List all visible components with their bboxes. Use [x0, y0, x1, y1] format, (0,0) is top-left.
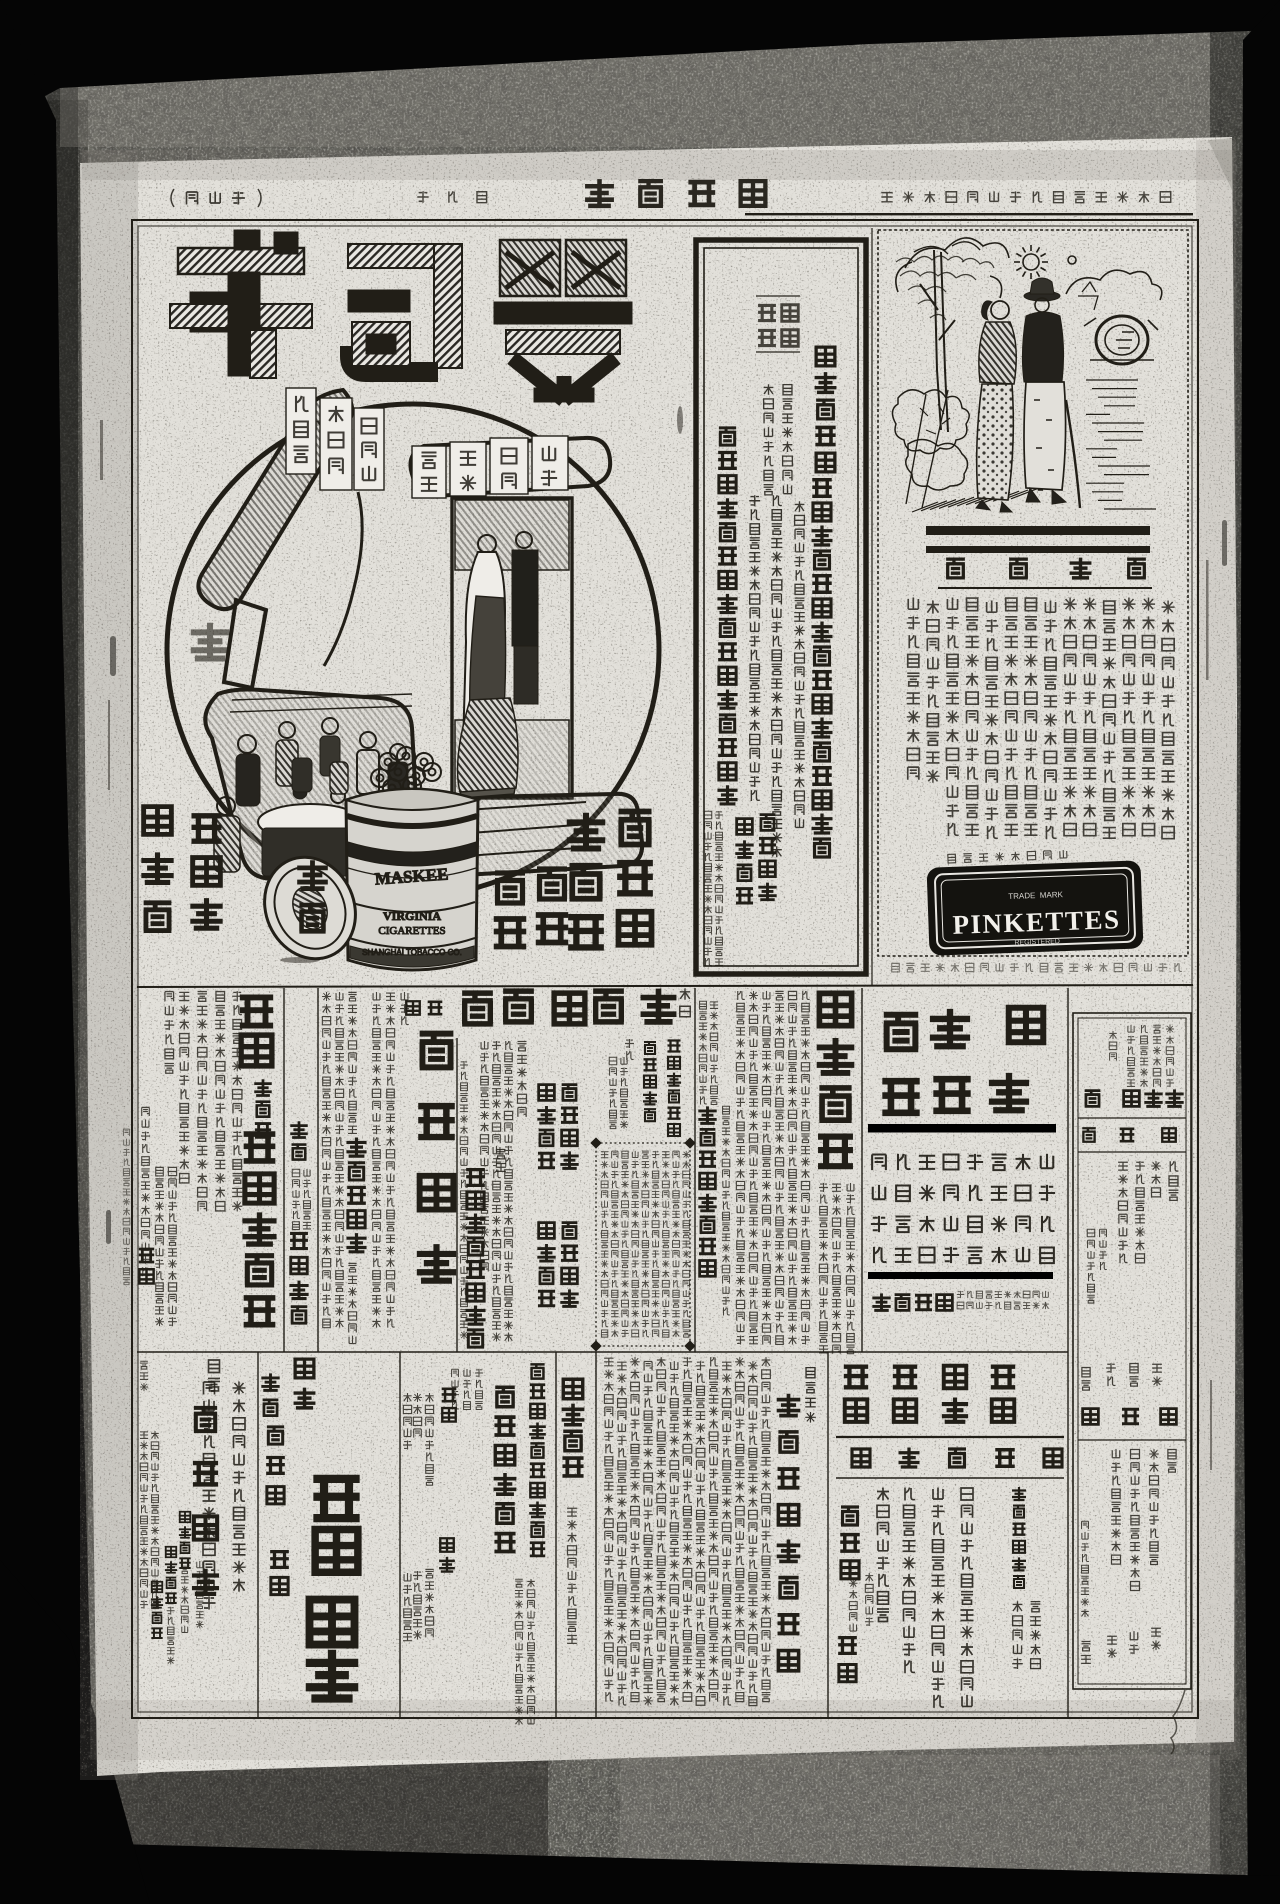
svg-text:PINKETTES: PINKETTES [952, 904, 1121, 940]
svg-text:VIRGINIA: VIRGINIA [383, 909, 441, 923]
svg-text:SHANGHAI TOBACCO CO.: SHANGHAI TOBACCO CO. [362, 948, 462, 957]
svg-text:CIGARETTES: CIGARETTES [378, 925, 445, 937]
